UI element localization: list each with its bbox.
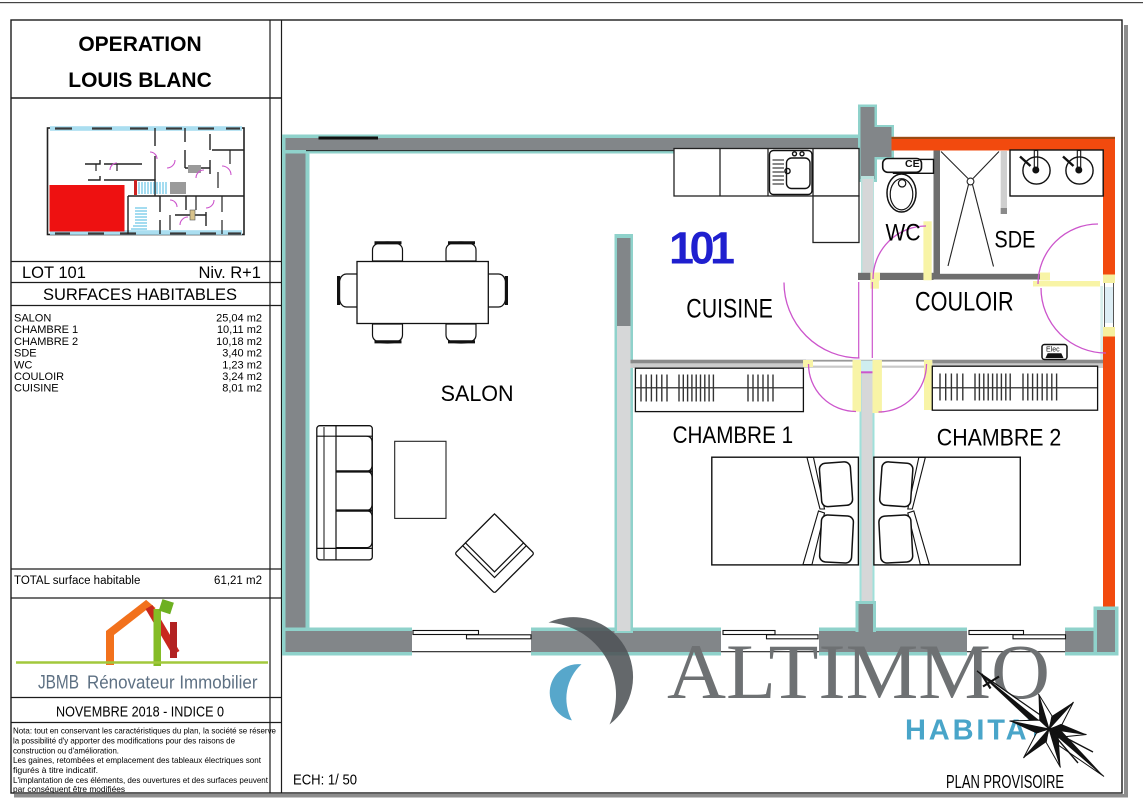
svg-text:construction ou d'amélioration: construction ou d'amélioration.	[13, 745, 119, 755]
svg-text:1,23 m2: 1,23 m2	[222, 359, 262, 371]
svg-text:CHAMBRE 2: CHAMBRE 2	[937, 425, 1062, 452]
svg-text:NOVEMBRE 2018 - INDICE 0: NOVEMBRE 2018 - INDICE 0	[56, 704, 224, 721]
svg-text:8,01 m2: 8,01 m2	[222, 383, 262, 395]
svg-text:101: 101	[669, 223, 735, 274]
svg-text:25,04 m2: 25,04 m2	[216, 313, 262, 325]
svg-text:Niv. R+1: Niv. R+1	[198, 264, 261, 282]
svg-text:61,21 m2: 61,21 m2	[214, 575, 262, 587]
svg-text:TOTAL surface habitable: TOTAL surface habitable	[14, 575, 140, 587]
svg-text:CUISINE: CUISINE	[686, 294, 773, 324]
svg-text:HABITAT: HABITAT	[905, 715, 1045, 747]
svg-text:WC: WC	[886, 220, 921, 247]
svg-text:CHAMBRE 1: CHAMBRE 1	[14, 324, 78, 336]
svg-text:figurés à titre indicatif.: figurés à titre indicatif.	[13, 765, 98, 775]
svg-text:10,11 m2: 10,11 m2	[217, 324, 262, 336]
svg-text:WC: WC	[14, 359, 32, 371]
svg-text:JBMB: JBMB	[38, 673, 79, 694]
svg-text:3,40 m2: 3,40 m2	[222, 348, 262, 360]
svg-text:3,24 m2: 3,24 m2	[222, 371, 262, 383]
svg-text:Nota: tout en conservant les c: Nota: tout en conservant les caractérist…	[13, 726, 276, 736]
svg-text:Rénovateur Immobilier: Rénovateur Immobilier	[87, 672, 258, 693]
svg-text:la possibilité d'y apporter de: la possibilité d'y apporter des modifica…	[13, 735, 235, 745]
svg-text:COULOIR: COULOIR	[14, 371, 64, 383]
svg-text:SALON: SALON	[14, 313, 51, 325]
svg-text:CHAMBRE 1: CHAMBRE 1	[673, 422, 794, 449]
svg-text:CHAMBRE 2: CHAMBRE 2	[14, 336, 78, 348]
svg-text:OPERATION: OPERATION	[78, 33, 201, 56]
svg-text:SDE: SDE	[14, 348, 37, 360]
svg-text:SDE: SDE	[994, 227, 1035, 254]
svg-text:SALON: SALON	[441, 381, 514, 406]
svg-text:COULOIR: COULOIR	[915, 287, 1014, 317]
svg-text:ECH: 1/ 50: ECH: 1/ 50	[293, 772, 357, 789]
svg-text:LOUIS BLANC: LOUIS BLANC	[68, 69, 212, 92]
svg-text:PLAN PROVISOIRE: PLAN PROVISOIRE	[946, 772, 1064, 792]
svg-text:Elec: Elec	[1046, 347, 1060, 354]
svg-text:SURFACES HABITABLES: SURFACES HABITABLES	[43, 286, 237, 304]
svg-text:CUISINE: CUISINE	[14, 383, 59, 395]
svg-text:Les gaines, retombées et empla: Les gaines, retombées et emplacement des…	[13, 755, 262, 765]
svg-text:par conséquent être modifiées: par conséquent être modifiées	[13, 784, 125, 794]
svg-text:CE: CE	[905, 158, 920, 170]
svg-text:LOT 101: LOT 101	[22, 264, 86, 282]
svg-text:10,18 m2: 10,18 m2	[216, 336, 262, 348]
svg-text:ALTIMMO: ALTIMMO	[667, 628, 1050, 715]
